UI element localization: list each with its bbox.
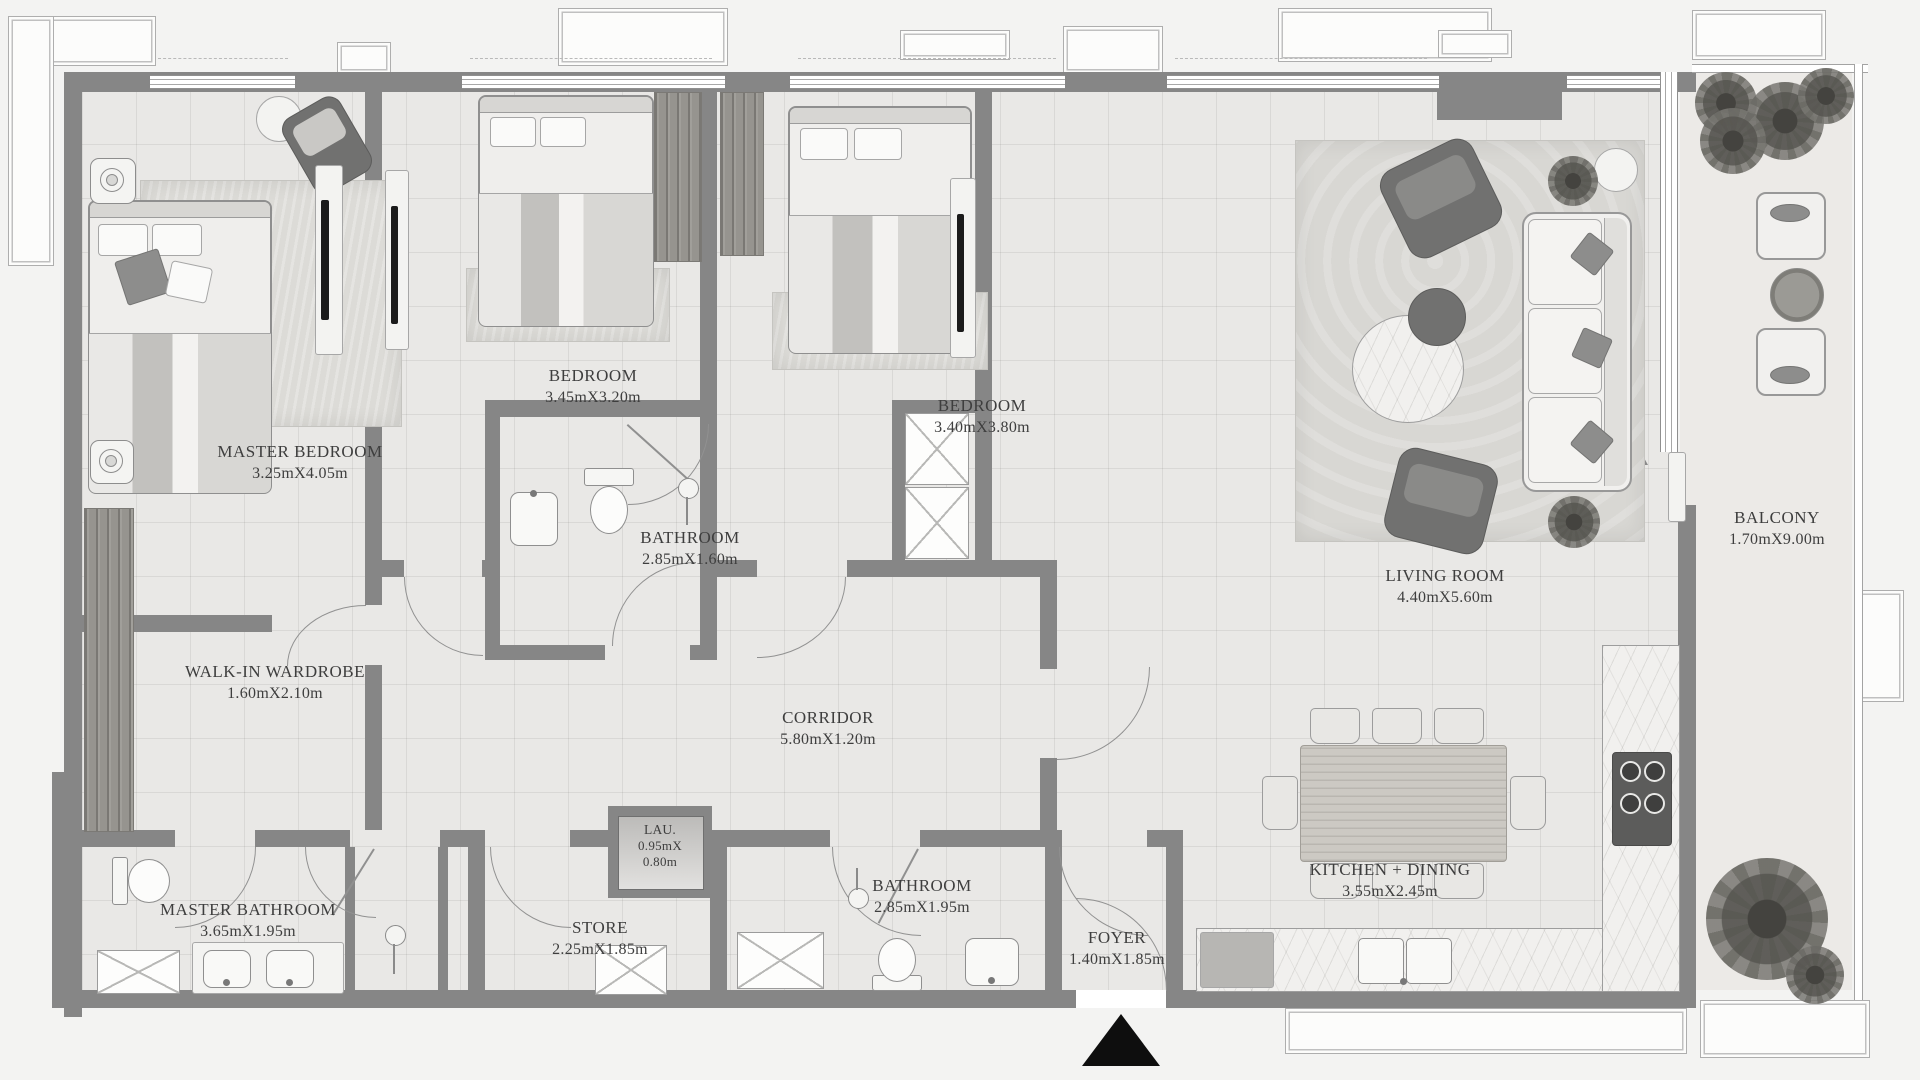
wall-bedroom1-bottom <box>382 560 404 577</box>
window-projection-dashes <box>158 58 288 59</box>
pillow <box>800 128 848 160</box>
pillow <box>165 260 214 304</box>
wall-right <box>1678 505 1696 1008</box>
shower-head-icon <box>848 888 869 909</box>
toilet-tank <box>112 857 128 905</box>
wall-corridor-south <box>82 830 175 847</box>
wardrobe-cabinet <box>654 92 702 262</box>
exterior-column-tab <box>337 42 391 74</box>
seat-cushion <box>1770 204 1810 222</box>
vanity-sink <box>203 950 251 988</box>
wall-wardrobe-corridor <box>365 665 382 830</box>
seat-cushion <box>1770 366 1810 384</box>
burner-icon <box>1620 793 1641 814</box>
wall-bathroom1-bottom <box>485 645 605 660</box>
window-projection-dashes <box>470 58 712 59</box>
room-label-master-bathroom: MASTER BATHROOM3.65mX1.95m <box>160 900 336 941</box>
kitchen-sink <box>1358 938 1404 984</box>
exterior-column-tab <box>1063 26 1163 74</box>
wall-closet <box>892 560 975 577</box>
balcony-table <box>1770 268 1824 322</box>
entrance-threshold <box>1076 990 1166 1008</box>
bed-headboard <box>90 202 270 218</box>
exterior-ledge <box>8 16 54 266</box>
toilet-bowl <box>590 486 628 534</box>
faucet-icon <box>530 490 537 497</box>
bed-bedroom2 <box>788 106 972 354</box>
wall-closet <box>892 400 905 560</box>
side-table <box>1594 148 1638 192</box>
window <box>462 75 725 89</box>
toilet-bowl <box>878 938 916 982</box>
pillow <box>540 117 586 147</box>
vanity-sink <box>266 950 314 988</box>
wall-corridor-kitchen <box>1040 577 1057 669</box>
room-label-bedroom1: BEDROOM3.45mX3.20m <box>545 366 641 407</box>
burner-icon <box>1644 761 1665 782</box>
plant-icon <box>1786 946 1844 1004</box>
pillow <box>152 224 202 256</box>
room-label-bedroom2: BEDROOM3.40mX3.80m <box>934 396 1030 437</box>
window-projection-dashes <box>1175 58 1427 59</box>
pillow <box>98 224 148 256</box>
tv <box>391 206 398 324</box>
bed-bedroom1 <box>478 95 654 327</box>
bed-blanket <box>789 215 971 353</box>
plant-icon <box>1700 108 1766 174</box>
closet-mirror-doors <box>905 487 969 559</box>
wall-bedroom1-bedroom2 <box>700 90 717 660</box>
room-label-store: STORE2.25mX1.85m <box>552 918 648 959</box>
wardrobe-panel <box>315 165 343 355</box>
wall-bottom <box>1166 990 1696 1008</box>
dining-chair <box>1310 708 1360 744</box>
faucet-icon <box>988 977 995 984</box>
faucet-icon <box>1400 978 1407 985</box>
kitchen-sink <box>1406 938 1452 984</box>
pillow-dark <box>114 248 172 306</box>
window-projection-dashes <box>798 58 1056 59</box>
room-label-bathroom1: BATHROOM2.85mX1.60m <box>640 528 739 569</box>
tv <box>321 200 329 320</box>
dining-chair <box>1510 776 1546 830</box>
shower-tray <box>737 932 824 989</box>
pillow <box>854 128 902 160</box>
balcony-sliding-door <box>1668 452 1686 522</box>
refrigerator <box>1200 932 1274 988</box>
room-label-kitchen-dining: KITCHEN + DINING3.55mX2.45m <box>1309 860 1470 901</box>
shower-head-icon <box>385 925 406 946</box>
balcony-armchair <box>1756 192 1826 260</box>
ceiling-fixture-icon <box>90 440 134 484</box>
window <box>150 75 295 89</box>
dining-chair <box>1372 708 1422 744</box>
room-label-walk-in-wardrobe: WALK-IN WARDROBE1.60mX2.10m <box>185 662 365 703</box>
wall-store-left <box>468 847 485 990</box>
shower-stem <box>856 868 858 890</box>
room-label-master-bedroom: MASTER BEDROOM3.25mX4.05m <box>217 442 382 483</box>
wall-corridor-end-top <box>975 560 1057 577</box>
wall-corridor-south <box>570 830 608 847</box>
entrance-arrow <box>1082 1014 1160 1066</box>
wall-store-bathroom2 <box>710 830 727 990</box>
wall-bathroom1-bottom <box>690 645 700 660</box>
wall-corridor-south <box>712 830 830 847</box>
wall-foyer-kitchen <box>1166 830 1183 990</box>
dining-chair <box>1434 708 1484 744</box>
floor-plan: MASTER BEDROOM3.25mX4.05m BEDROOM3.45mX3… <box>0 0 1920 1080</box>
dining-table <box>1300 745 1507 862</box>
balcony-armchair <box>1756 328 1826 396</box>
room-label-foyer: FOYER1.40mX1.85m <box>1069 928 1165 969</box>
room-label-corridor: CORRIDOR5.80mX1.20m <box>780 708 876 749</box>
plant-icon <box>1798 68 1854 124</box>
wall-corridor-south <box>1147 830 1166 847</box>
wall-left <box>64 72 82 1017</box>
tv <box>957 214 964 332</box>
bed-headboard <box>790 108 970 124</box>
room-label-bathroom2: BATHROOM2.85mX1.95m <box>872 876 971 917</box>
exterior-ledge <box>1858 590 1904 702</box>
burner-icon <box>1644 793 1665 814</box>
wall-corridor-south <box>255 830 350 847</box>
window <box>1167 75 1439 89</box>
wall-left-step <box>52 772 66 1008</box>
room-label-laundry: LAU. 0.95mX 0.80m <box>638 822 682 870</box>
faucet-icon <box>223 979 230 986</box>
shower-stem <box>686 497 688 525</box>
ceiling-fixture-icon <box>90 158 136 204</box>
wardrobe-cabinet <box>720 92 764 256</box>
wall-livingroom-pier <box>1437 92 1562 120</box>
room-label-balcony: BALCONY1.70mX9.00m <box>1729 508 1825 549</box>
balcony-railing-top <box>1692 64 1868 73</box>
burner-icon <box>1620 761 1641 782</box>
toilet-tank <box>584 468 634 486</box>
plant-icon <box>1548 156 1598 206</box>
window <box>1567 75 1660 89</box>
exterior-column-tab <box>1438 30 1512 58</box>
balcony-window-wall <box>1660 72 1678 452</box>
exterior-step <box>1285 1008 1687 1054</box>
shower-head-icon <box>678 478 699 499</box>
room-label-living-room: LIVING ROOM4.40mX5.60m <box>1385 566 1504 607</box>
exterior-ledge <box>1692 10 1826 60</box>
bathroom-sink <box>510 492 558 546</box>
toilet-bowl <box>128 859 170 903</box>
exterior-step <box>1700 1000 1870 1058</box>
pillow <box>490 117 536 147</box>
shower-tray <box>97 950 180 994</box>
exterior-ledge <box>900 30 1010 60</box>
wall-bedroom2-bottom <box>847 560 892 577</box>
dining-chair <box>1262 776 1298 830</box>
sofa <box>1522 212 1632 492</box>
wall-bathroom1-left <box>485 417 500 660</box>
coffee-table-small <box>1408 288 1466 346</box>
faucet-icon <box>286 979 293 986</box>
bed-headboard <box>480 97 652 113</box>
wall-corridor-south <box>920 830 1057 847</box>
plant-icon <box>1548 496 1600 548</box>
window <box>790 75 1065 89</box>
wall-shower-cubicle <box>438 847 448 990</box>
cooktop <box>1612 752 1672 846</box>
bathroom-sink <box>965 938 1019 986</box>
shower-stem <box>393 944 395 974</box>
wall-corridor-kitchen <box>1040 758 1057 832</box>
wardrobe-cabinets <box>84 508 134 832</box>
bed-blanket <box>479 193 653 326</box>
wall-corridor-south <box>440 830 485 847</box>
balcony-railing-right <box>1854 64 1863 1000</box>
